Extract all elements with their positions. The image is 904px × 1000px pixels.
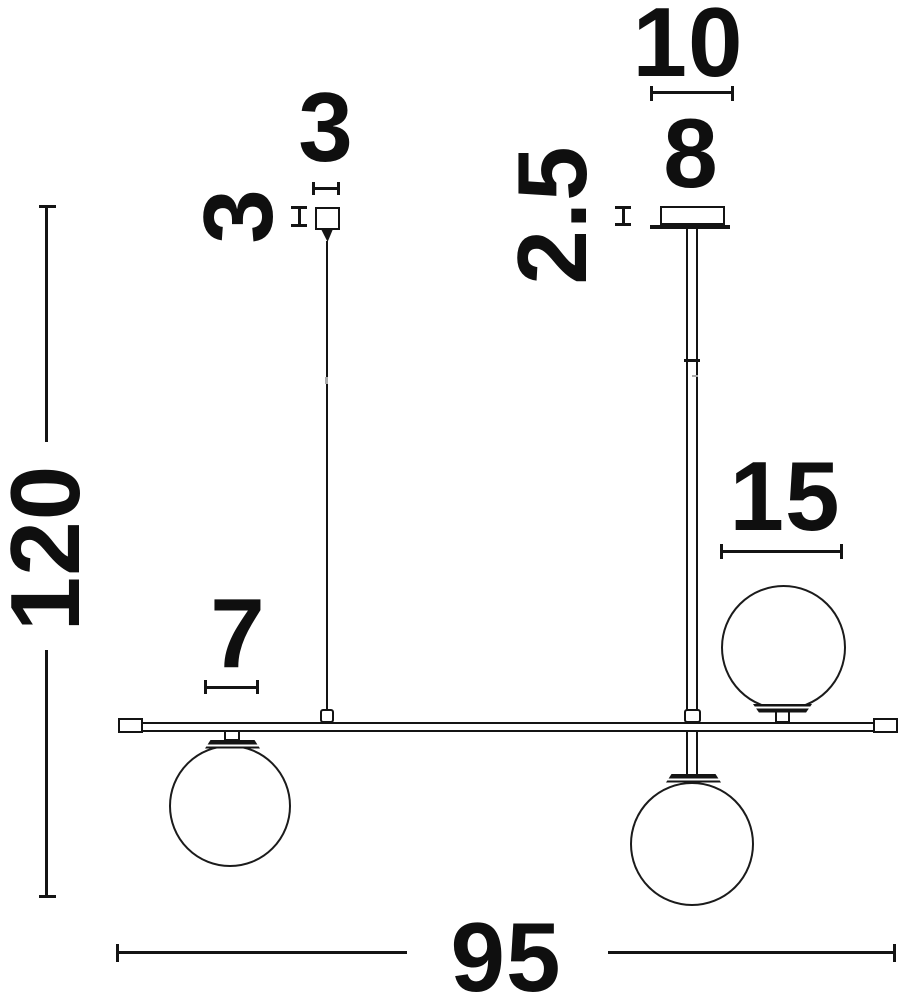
dim-tick — [893, 944, 896, 962]
dim-tick — [615, 206, 631, 209]
socket-left-globe — [205, 740, 260, 749]
canopy-flange — [650, 225, 730, 229]
ceiling-canopy-right — [660, 206, 725, 225]
dim-tick — [204, 680, 207, 694]
suspension-cable — [326, 241, 328, 709]
dim-tick — [291, 224, 307, 227]
dim-tick — [337, 182, 340, 195]
dim-label-canopy-width: 8 — [663, 104, 719, 202]
dim-label-bar-length: 95 — [450, 908, 561, 1000]
dim-label-canopy-thickness: 2.5 — [503, 145, 601, 284]
globe-left — [169, 745, 291, 867]
dim-line-bar-length-right — [608, 951, 895, 954]
dim-tick — [650, 86, 653, 101]
dim-line-plate-width — [651, 91, 734, 94]
rod-joint-mark — [692, 375, 698, 377]
globe-lower-right — [630, 782, 754, 906]
dim-tick — [840, 544, 843, 559]
bar-end-cap-left — [118, 718, 143, 733]
dim-label-plate-width: 10 — [632, 0, 743, 91]
globe-upper-right — [721, 585, 846, 710]
horizontal-bar — [140, 722, 876, 732]
suspension-rod — [686, 229, 698, 774]
dim-line-overall-drop-lower — [45, 650, 48, 897]
dim-tick — [312, 182, 315, 195]
dim-line-bar-length-left — [118, 951, 407, 954]
bar-end-cap-right — [873, 718, 898, 733]
dim-label-cube-width: 3 — [298, 78, 354, 176]
dim-line-overall-drop-upper — [45, 207, 48, 442]
ceiling-cube-left — [315, 207, 340, 230]
dim-tick — [39, 895, 56, 898]
dim-tick — [615, 223, 631, 226]
dimension-drawing: 10 8 2.5 3 3 120 15 7 95 — [0, 0, 904, 1000]
dim-label-globe-diameter: 15 — [729, 447, 840, 545]
socket-upper-globe — [753, 704, 812, 713]
dim-tick — [291, 206, 307, 209]
dim-tick — [731, 86, 734, 101]
socket-lower-globe — [666, 774, 721, 783]
dim-line-cube-width — [314, 187, 339, 190]
rod-joint — [684, 359, 700, 362]
cable-joint-mark — [325, 377, 328, 384]
dim-label-cube-height: 3 — [189, 188, 287, 244]
dim-line-globe-diameter — [722, 550, 843, 553]
dim-tick — [256, 680, 259, 694]
dim-label-overall-drop: 120 — [0, 465, 94, 632]
dim-label-small-spacing: 7 — [210, 584, 266, 682]
rod-bar-connector — [684, 709, 701, 723]
dim-line-small-spacing — [206, 686, 259, 689]
dim-tick — [720, 544, 723, 559]
cable-bar-connector — [320, 709, 334, 723]
